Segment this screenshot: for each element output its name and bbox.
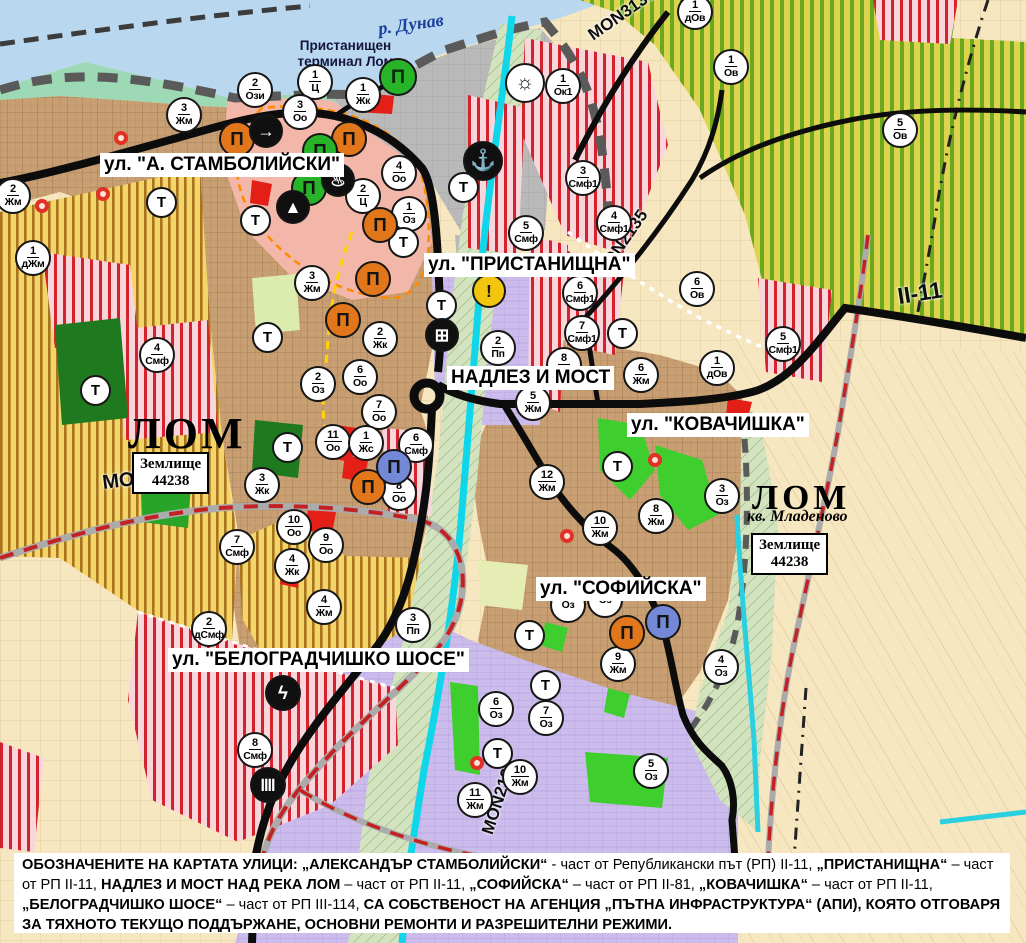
- zone-marker: 8Жм: [638, 498, 674, 534]
- zone-marker: 5Жм: [515, 385, 551, 421]
- zone-marker: 3Пп: [395, 607, 431, 643]
- zone-marker: 1Ок1: [545, 68, 581, 104]
- warning-icon: !: [472, 274, 506, 308]
- street-label: НАДЛЕЗ И МОСТ: [447, 366, 614, 390]
- zone-marker: 3Оз: [704, 478, 740, 514]
- zone-marker: 5Смф1: [765, 326, 801, 362]
- zone-marker: 11Жм: [457, 782, 493, 818]
- zone-marker: 9Жм: [600, 646, 636, 682]
- zone-marker: 10Жм: [582, 510, 618, 546]
- landmark-icon: Π: [355, 261, 391, 297]
- landmark-blue-icon: Π: [376, 449, 412, 485]
- zone-marker: 3Жм: [294, 265, 330, 301]
- zone-marker: 6Жм: [623, 357, 659, 393]
- zone-marker: 10Оо: [276, 509, 312, 545]
- transport-marker: Т: [602, 451, 633, 482]
- port-facility-icon: Π: [379, 58, 417, 96]
- zone-marker: 7Оз: [528, 700, 564, 736]
- zone-marker: 4Жм: [306, 589, 342, 625]
- zone-marker: 3Смф1: [565, 160, 601, 196]
- transport-marker: Т: [482, 738, 513, 769]
- zone-marker: 6Ов: [679, 271, 715, 307]
- transport-marker: Т: [146, 187, 177, 218]
- poi-red-dot: [560, 529, 574, 543]
- zone-marker: 4Жк: [274, 548, 310, 584]
- transport-marker: Т: [514, 620, 545, 651]
- transport-marker: Т: [272, 432, 303, 463]
- zone-marker: 4Смф: [139, 337, 175, 373]
- zone-marker: 2Жк: [362, 321, 398, 357]
- zone-marker: 5Оз: [633, 753, 669, 789]
- street-label: ул. "А. СТАМБОЛИЙСКИ": [100, 153, 344, 177]
- zone-marker: 12Жм: [529, 464, 565, 500]
- anchor-icon: ⚓: [463, 141, 503, 181]
- zone-marker: 1Ов: [713, 49, 749, 85]
- zone-marker: 11Оо: [315, 424, 351, 460]
- zone-marker: 9Оо: [308, 527, 344, 563]
- zone-marker: 6Оз: [478, 691, 514, 727]
- monument-icon: ▲: [276, 190, 310, 224]
- transport-marker: Т: [607, 318, 638, 349]
- zone-marker: 4Смф1: [596, 205, 632, 241]
- landmark-icon: Π: [609, 615, 645, 651]
- zone-marker: 3Жм: [166, 97, 202, 133]
- poi-red-dot: [35, 199, 49, 213]
- zoning-map-lom: р. Дунав Пристанищен терминал Лом ЛОМ ЛО…: [0, 0, 1026, 943]
- zone-marker: 1дЖм: [15, 240, 51, 276]
- transport-marker: Т: [426, 290, 457, 321]
- zone-marker: 4Оо: [381, 155, 417, 191]
- zone-marker: 2дСмф: [191, 611, 227, 647]
- beach-sun-icon: ☼: [505, 63, 545, 103]
- poi-red-dot: [114, 131, 128, 145]
- poi-red-dot: [96, 187, 110, 201]
- zone-marker: 2Ози: [237, 72, 273, 108]
- truck-icon: ⊞: [425, 318, 459, 352]
- zone-marker: 7Смф1: [564, 315, 600, 351]
- landmark-icon: Π: [325, 302, 361, 338]
- map-footer-note: ОБОЗНАЧЕНИТЕ НА КАРТАТА УЛИЦИ: „АЛЕКСАНД…: [14, 853, 1010, 933]
- zone-marker: 5Смф: [508, 215, 544, 251]
- transport-marker: Т: [252, 322, 283, 353]
- zone-marker: 2Пп: [480, 330, 516, 366]
- street-label: ул. "КОВАЧИШКА": [627, 413, 809, 437]
- landmark-icon: Π: [362, 207, 398, 243]
- zone-marker: 3Жк: [244, 467, 280, 503]
- landmark-blue-icon: Π: [645, 604, 681, 640]
- power-icon: ϟ: [265, 675, 301, 711]
- zone-marker: 6Смф1: [562, 275, 598, 311]
- zone-marker: 6Оо: [342, 359, 378, 395]
- transport-marker: Т: [80, 375, 111, 406]
- zone-marker: 5Ов: [882, 112, 918, 148]
- zone-marker: 7Смф: [219, 529, 255, 565]
- street-label: ул. "СОФИЙСКА": [536, 577, 706, 601]
- zone-marker: 3Оо: [282, 94, 318, 130]
- zone-marker: 1Жк: [345, 77, 381, 113]
- rail-station-icon: ≣: [250, 767, 286, 803]
- zone-marker: 8Смф: [237, 732, 273, 768]
- street-label: ул. "ПРИСТАНИЩНА": [424, 253, 635, 277]
- zone-marker: 4Оз: [703, 649, 739, 685]
- street-label: ул. "БЕЛОГРАДЧИШКО ШОСЕ": [168, 648, 469, 672]
- land-unit-box: Землище44238: [132, 452, 209, 494]
- transport-marker: Т: [240, 205, 271, 236]
- kvartal-mladenovo-label: кв. Младеново: [747, 508, 848, 526]
- zone-marker: 1дОв: [699, 350, 735, 386]
- zone-marker: 2Оз: [300, 366, 336, 402]
- land-unit-box: Землище44238: [751, 533, 828, 575]
- gate-icon: →: [249, 114, 283, 148]
- poi-red-dot: [648, 453, 662, 467]
- transport-marker: Т: [530, 670, 561, 701]
